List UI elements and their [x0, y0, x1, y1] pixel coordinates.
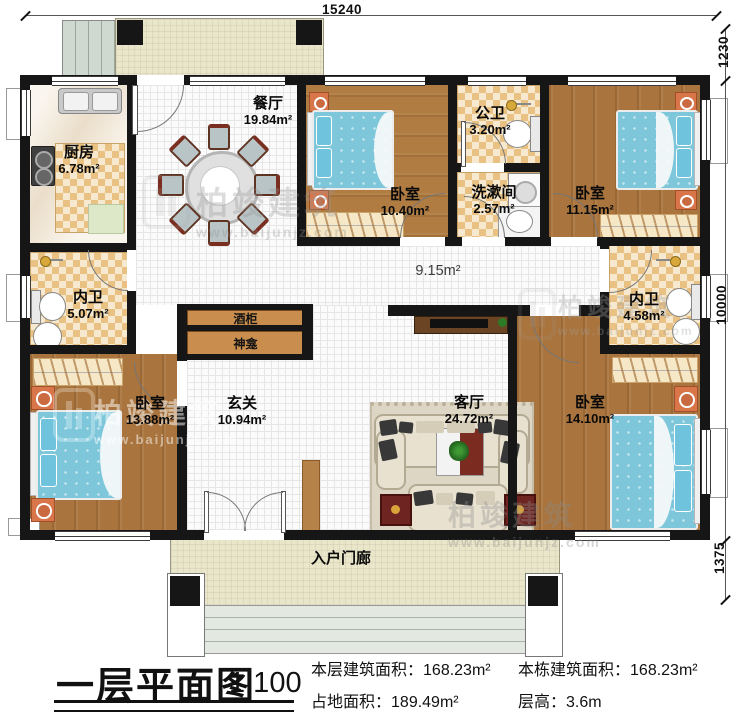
closet — [33, 358, 123, 386]
room-area: 5.07m² — [67, 307, 108, 322]
door-opening — [400, 237, 445, 246]
dimension-right-bottom-value: 1375 — [712, 542, 727, 574]
back-porch-floor — [115, 18, 324, 78]
stat-value: 189.49m² — [391, 694, 459, 711]
dining-chair — [208, 220, 230, 246]
room-label-living: 客厅 24.72m² — [445, 395, 493, 426]
room-area: 4.58m² — [623, 309, 664, 324]
window — [21, 276, 31, 318]
room-area: 24.72m² — [445, 412, 493, 427]
nightstand — [309, 92, 329, 112]
entry-door-opening — [204, 530, 284, 540]
toilet-bowl — [666, 288, 693, 317]
room-label-bedroom-bottom-left: 卧室 13.88m² — [126, 396, 174, 427]
bed-sheet-fold — [656, 112, 674, 188]
shrine-niche: 神龛 — [187, 331, 304, 356]
watermark-logo — [53, 388, 95, 442]
door-opening — [127, 250, 136, 291]
stat-value: 168.23m² — [423, 662, 491, 679]
side-table-lamp — [391, 505, 401, 515]
closet — [612, 357, 698, 383]
room-label-bath-left: 内卫 5.07m² — [67, 290, 108, 321]
room-name: 卧室 — [381, 187, 429, 204]
sofa-cushion — [455, 492, 473, 506]
room-name: 卧室 — [126, 396, 174, 413]
room-name: 洗漱间 — [471, 185, 516, 202]
window — [325, 76, 425, 86]
room-name: 厨房 — [58, 145, 99, 162]
room-name: 客厅 — [445, 395, 493, 412]
plant — [498, 318, 507, 327]
dimension-line-top — [25, 15, 717, 16]
dining-chair — [254, 174, 280, 196]
shower-arm — [49, 259, 63, 261]
wall — [177, 354, 313, 360]
watermark-logo — [142, 175, 190, 229]
room-area: 10.40m² — [381, 204, 429, 219]
window — [701, 100, 711, 160]
room-label-bedroom-bottom-right: 卧室 14.10m² — [566, 395, 614, 426]
dining-table-turntable — [200, 166, 240, 206]
window — [701, 430, 711, 494]
dining-chair — [208, 124, 230, 150]
entry-porch-floor — [170, 537, 560, 607]
sofa-cushion — [398, 421, 413, 433]
window — [55, 531, 150, 541]
room-area: 3.20m² — [469, 123, 510, 138]
room-area: 14.10m² — [566, 412, 614, 427]
sofa-cushion — [413, 490, 434, 507]
room-label-washroom: 洗漱间 2.57m² — [471, 185, 516, 216]
room-area: 6.78m² — [58, 162, 99, 177]
pillow — [674, 424, 692, 466]
nightstand — [309, 190, 329, 210]
coffee-table-plant — [449, 441, 469, 461]
nightstand-lamp — [36, 503, 51, 518]
window — [190, 76, 285, 86]
closet — [600, 214, 698, 238]
shower-arm — [656, 259, 670, 261]
back-porch-column — [296, 20, 322, 45]
kitchen-sink — [58, 88, 122, 114]
stove-burner — [35, 151, 53, 169]
dimension-tick — [20, 11, 31, 22]
stat-label: 本层建筑面积： — [311, 662, 423, 679]
sink-basin — [92, 92, 118, 111]
window — [575, 531, 670, 541]
room-label-bedroom-top-left: 卧室 10.40m² — [381, 187, 429, 218]
room-area: 10.94m² — [218, 413, 266, 428]
nightstand-lamp — [314, 195, 327, 208]
kitchen-mat — [88, 204, 124, 234]
room-name: 卧室 — [566, 186, 614, 203]
room-name: 公卫 — [469, 106, 510, 123]
sink-basin — [63, 92, 89, 111]
nightstand — [675, 92, 697, 112]
room-label-dining: 餐厅 19.84m² — [244, 96, 292, 127]
window — [701, 276, 711, 318]
nightstand — [675, 190, 697, 210]
back-porch-steps — [62, 20, 117, 79]
wall — [600, 345, 710, 354]
wall — [177, 304, 187, 540]
stat-land-area: 占地面积：189.49m² — [311, 688, 459, 712]
stove-burner — [35, 168, 53, 186]
stat-storey-height: 层高：3.6m — [518, 688, 602, 712]
room-name: 卧室 — [566, 395, 614, 412]
room-label-bedroom-top-right: 卧室 11.15m² — [566, 186, 614, 217]
kitchen-stove — [31, 146, 55, 186]
window — [468, 76, 526, 86]
pillow — [316, 116, 332, 146]
wall — [20, 345, 136, 354]
room-label-corridor: 9.15m² — [415, 263, 460, 279]
bed-sheet-fold — [374, 112, 392, 188]
door-opening — [137, 75, 184, 85]
stat-label: 层高： — [518, 694, 566, 711]
sofa-cushion — [379, 419, 398, 436]
stat-label: 占地面积： — [311, 694, 391, 711]
dimension-tick — [711, 11, 722, 22]
toilet-bowl — [39, 292, 66, 321]
floor-plan-canvas: 15240 1230 10000 1375 — [0, 0, 750, 725]
window — [21, 90, 31, 136]
sofa-cushion — [476, 491, 495, 505]
dimension-right-main-value: 10000 — [714, 285, 729, 325]
window — [568, 76, 676, 86]
wall — [187, 325, 302, 331]
watermark-logo — [518, 288, 556, 340]
stat-label: 本栋建筑面积： — [518, 662, 630, 679]
shower-head — [670, 256, 681, 267]
nightstand-lamp — [679, 392, 694, 408]
washbasin — [672, 318, 700, 345]
pillow — [40, 454, 57, 487]
room-area: 11.15m² — [566, 203, 614, 218]
room-name: 内卫 — [67, 290, 108, 307]
nightstand-lamp — [680, 195, 694, 208]
back-porch-column — [117, 20, 143, 45]
side-table — [380, 494, 412, 526]
nightstand-lamp — [314, 97, 327, 110]
pillow — [676, 116, 692, 146]
room-name: 餐厅 — [244, 96, 292, 113]
door-opening — [462, 237, 505, 246]
room-label-porch: 入户门廊 — [311, 551, 371, 568]
stat-value: 3.6m — [566, 694, 602, 711]
room-area: 19.84m² — [244, 113, 292, 128]
nightstand — [31, 498, 55, 522]
room-label-public-bath: 公卫 3.20m² — [469, 106, 510, 137]
faucet-arm — [515, 103, 531, 105]
stat-value: 168.23m² — [630, 662, 698, 679]
sofa-cushion — [436, 493, 453, 505]
door-opening — [551, 237, 597, 246]
bed-sheet-fold — [100, 412, 120, 498]
wall — [508, 316, 517, 540]
sofa-cushion — [416, 421, 444, 433]
wall — [177, 304, 313, 310]
room-label-kitchen: 厨房 6.78m² — [58, 145, 99, 176]
door-opening — [600, 249, 609, 292]
bed-sheet-fold — [654, 416, 674, 528]
room-name: 内卫 — [623, 292, 664, 309]
dimension-top-value: 15240 — [322, 2, 362, 17]
room-label-bath-right: 内卫 4.58m² — [623, 292, 664, 323]
stat-building-area: 本栋建筑面积：168.23m² — [518, 656, 698, 680]
dimension-right-top-value: 1230 — [716, 36, 731, 68]
nightstand-lamp — [680, 97, 694, 110]
tv — [430, 319, 488, 328]
washing-machine-drum — [514, 181, 537, 204]
pillow — [676, 148, 692, 178]
shoe-cabinet — [302, 460, 320, 532]
room-name: 入户门廊 — [311, 551, 371, 568]
nightstand — [31, 386, 55, 410]
shower-head — [40, 256, 51, 267]
porch-column — [170, 576, 200, 606]
room-area: 9.15m² — [415, 263, 460, 279]
shrine-label: 神龛 — [233, 335, 257, 352]
wall — [297, 85, 306, 246]
room-area: 13.88m² — [126, 413, 174, 428]
room-label-foyer: 玄关 10.94m² — [218, 396, 266, 427]
room-area: 2.57m² — [471, 202, 516, 217]
title-underline — [54, 700, 294, 712]
room-name: 玄关 — [218, 396, 266, 413]
door-opening — [177, 361, 187, 406]
door-opening — [461, 163, 504, 172]
stat-floor-area: 本层建筑面积：168.23m² — [311, 656, 491, 680]
nightstand — [674, 386, 698, 412]
nightstand-lamp — [36, 391, 51, 406]
entry-steps — [200, 605, 532, 654]
pillow — [674, 470, 692, 512]
plan-scale: 1:100 — [229, 667, 302, 700]
wall — [302, 304, 313, 360]
porch-column — [528, 576, 558, 606]
window — [52, 76, 118, 86]
pillow — [316, 148, 332, 178]
